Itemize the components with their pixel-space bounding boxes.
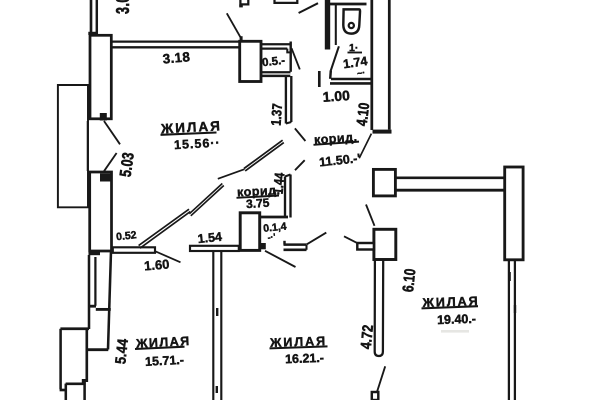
svg-text:5.03: 5.03: [117, 152, 138, 179]
svg-text:1.00: 1.00: [322, 87, 351, 105]
svg-text:6.10: 6.10: [399, 268, 419, 293]
svg-text:0.52: 0.52: [116, 229, 138, 243]
svg-text:3.18: 3.18: [162, 49, 191, 66]
svg-text:1.60: 1.60: [143, 256, 170, 273]
svg-text:15.56··: 15.56··: [174, 136, 221, 152]
svg-text:4.72: 4.72: [358, 324, 376, 350]
svg-text:~·: ~·: [356, 67, 366, 78]
svg-text:15.71.-: 15.71.-: [145, 353, 185, 369]
svg-text:1.54: 1.54: [197, 230, 223, 246]
svg-text:3.0: 3.0: [114, 0, 134, 14]
svg-text:1.37: 1.37: [269, 103, 286, 126]
svg-text:0.5.-: 0.5.-: [262, 55, 286, 69]
svg-text:3.75: 3.75: [246, 196, 271, 212]
svg-text:-·': -·': [267, 232, 276, 243]
svg-text:19.40.-: 19.40.-: [437, 312, 476, 327]
svg-text:4.10: 4.10: [353, 102, 372, 127]
svg-text:5.44: 5.44: [112, 338, 132, 365]
svg-text:16.21.-: 16.21.-: [285, 351, 324, 366]
